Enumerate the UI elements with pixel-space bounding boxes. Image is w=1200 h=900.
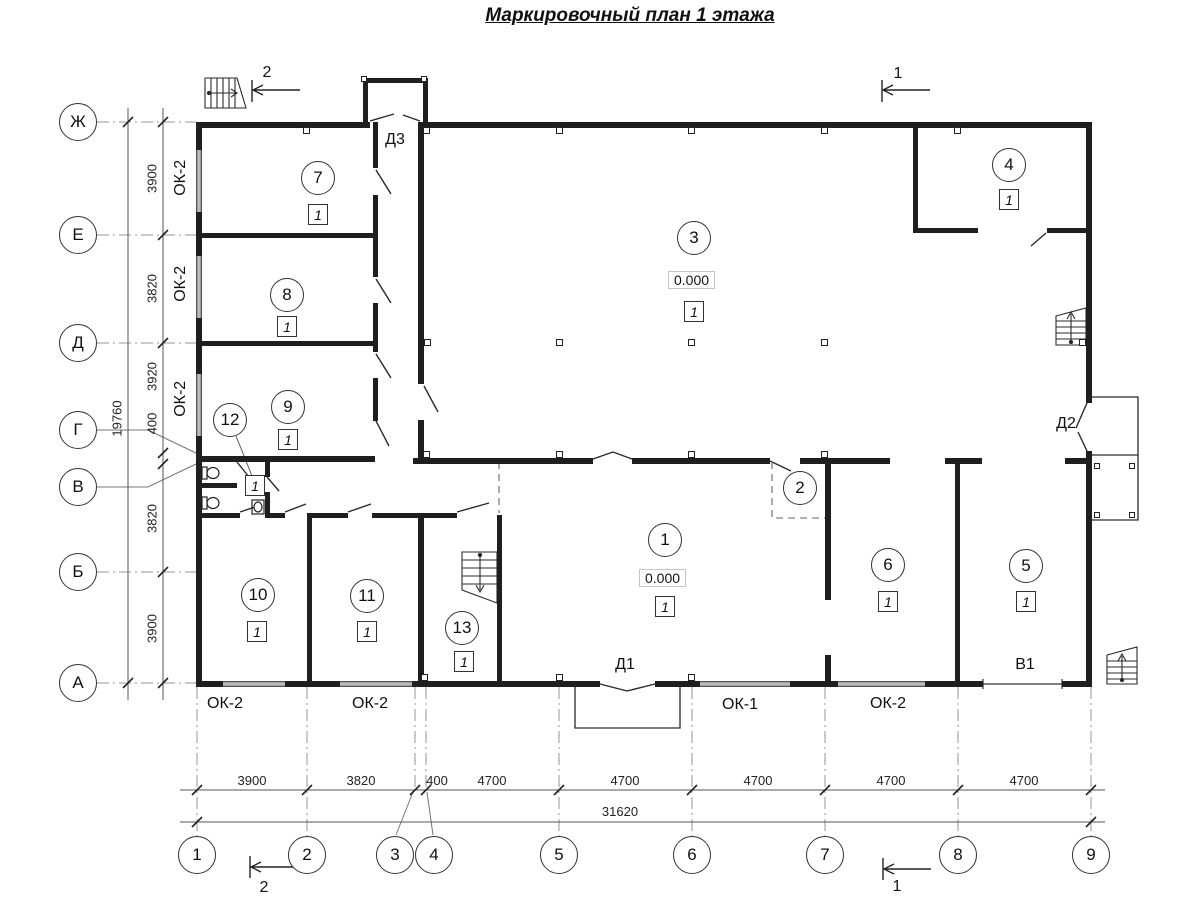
column <box>688 339 695 346</box>
section-1-bottom-label: 1 <box>889 878 905 896</box>
grid-col-8: 8 <box>939 836 977 874</box>
grid-row-v: В <box>59 468 97 506</box>
room-9-badge: 1 <box>278 429 298 450</box>
window-ok2-room11 <box>340 681 412 687</box>
column <box>1094 512 1100 518</box>
room-2-number: 2 <box>783 471 817 505</box>
wall-room4-south-1 <box>913 228 978 233</box>
window-ok2-label-bottom-3: ОК-2 <box>858 695 918 713</box>
wall-corridor-south-4 <box>372 513 457 518</box>
wall-hall-south-2 <box>632 458 770 464</box>
door-d1-label: Д1 <box>605 656 645 674</box>
wall-wc-vert-1 <box>265 462 270 477</box>
column <box>1079 339 1086 346</box>
wall-hall-south-1 <box>413 458 593 464</box>
wall-room2-east-1 <box>825 462 831 600</box>
drawing-title: Маркировочный план 1 этажа <box>400 5 860 27</box>
dim-col-6: 4700 <box>736 774 780 787</box>
wall-corridor-west-4 <box>373 378 378 421</box>
room-4-number: 4 <box>992 148 1026 182</box>
wall-corridor-south-1 <box>196 513 240 518</box>
room-1-badge: 1 <box>655 596 675 617</box>
window-ok2-label-left-1: ОК-2 <box>172 156 190 200</box>
wall-corridor-west-3 <box>373 303 378 352</box>
dashed-partitions <box>499 462 827 518</box>
column <box>688 127 695 134</box>
wall-room10-11 <box>307 518 312 681</box>
grid-col-4: 4 <box>415 836 453 874</box>
grid-row-b: Б <box>59 553 97 591</box>
floor-plan: Маркировочный план 1 этажа Ж Е Д Г В Б А… <box>0 0 1200 900</box>
room-5-badge: 1 <box>1016 591 1036 612</box>
column <box>423 127 430 134</box>
column <box>423 451 430 458</box>
porches <box>575 397 1138 728</box>
dim-col-1: 3900 <box>230 774 274 787</box>
dim-col-7: 4700 <box>869 774 913 787</box>
column <box>821 127 828 134</box>
grid-row-zh: Ж <box>59 103 97 141</box>
room-12-number: 12 <box>213 403 247 437</box>
window-ok2-room10 <box>223 681 285 687</box>
wall-vestibule-west <box>363 78 368 124</box>
gate-v1-opening <box>983 679 1062 689</box>
wall-vestibule-east <box>423 78 428 124</box>
wall-room4-west <box>913 128 918 233</box>
wall-room11-13 <box>418 518 424 681</box>
window-ok2-room6 <box>838 681 925 687</box>
window-ok2-room9 <box>196 374 202 436</box>
room-11-badge: 1 <box>357 621 377 642</box>
grid-col-1: 1 <box>178 836 216 874</box>
wall-room5-6 <box>955 462 960 681</box>
column <box>1129 463 1135 469</box>
grid-col-6: 6 <box>673 836 711 874</box>
column <box>556 127 563 134</box>
grid-col-9: 9 <box>1072 836 1110 874</box>
dim-row-1: 3900 <box>146 159 159 199</box>
dim-col-3: 400 <box>422 774 452 787</box>
wall-corridor-west-2 <box>373 195 378 277</box>
dim-row-4: 400 <box>146 409 159 439</box>
dim-row-2: 3820 <box>146 269 159 309</box>
wall-corridor-south-2 <box>265 513 285 518</box>
section-2-bottom-label: 2 <box>256 879 272 897</box>
room-4-badge: 1 <box>999 189 1019 210</box>
linework-layer <box>0 0 1200 900</box>
room-8-number: 8 <box>270 278 304 312</box>
window-ok2-label-bottom-2: ОК-2 <box>340 695 400 713</box>
wall-hall-south-4 <box>945 458 982 464</box>
window-ok2-label-left-3: ОК-2 <box>172 377 190 421</box>
dim-row-6: 3900 <box>146 609 159 649</box>
window-ok1-label: ОК-1 <box>710 696 770 714</box>
room-1-elevation: 0.000 <box>639 569 686 587</box>
window-ok2-label-bottom-1: ОК-2 <box>195 695 255 713</box>
wall-east-upper <box>1086 122 1092 403</box>
dim-col-2: 3820 <box>339 774 383 787</box>
grid-row-e: Е <box>59 216 97 254</box>
door-d2-label: Д2 <box>1046 415 1086 433</box>
window-ok2-label-left-2: ОК-2 <box>172 262 190 306</box>
dim-col-5: 4700 <box>603 774 647 787</box>
room-7-number: 7 <box>301 161 335 195</box>
window-ok2-room8 <box>196 256 202 318</box>
gate-v1-label: В1 <box>1005 656 1045 674</box>
room-13-number: 13 <box>445 611 479 645</box>
window-ok2-room7 <box>196 150 202 212</box>
column <box>1094 463 1100 469</box>
section-1-top-label: 1 <box>890 65 906 83</box>
grid-col-7: 7 <box>806 836 844 874</box>
column <box>688 674 695 681</box>
column <box>361 76 367 82</box>
grid-col-3: 3 <box>376 836 414 874</box>
wall-room4-south-2 <box>1047 228 1086 233</box>
column <box>954 127 961 134</box>
room-6-badge: 1 <box>878 591 898 612</box>
wall-vestibule-north <box>363 78 428 83</box>
room-1-number: 1 <box>648 523 682 557</box>
room-7-badge: 1 <box>308 204 328 225</box>
wall-wc-partition <box>202 483 237 488</box>
wall-row-e <box>196 233 377 238</box>
room-9-number: 9 <box>271 390 305 424</box>
column <box>688 451 695 458</box>
column <box>556 339 563 346</box>
grid-col-5: 5 <box>540 836 578 874</box>
column <box>821 339 828 346</box>
grid-row-g: Г <box>59 411 97 449</box>
wall-corridor-south-3 <box>307 513 348 518</box>
room-13-badge: 1 <box>454 651 474 672</box>
column <box>556 674 563 681</box>
column <box>303 127 310 134</box>
wall-row-g <box>196 456 375 462</box>
dim-col-8: 4700 <box>1002 774 1046 787</box>
room-12-badge: 1 <box>245 475 265 496</box>
column <box>421 76 427 82</box>
door-d3-label: Д3 <box>375 131 415 149</box>
room-8-badge: 1 <box>277 316 297 337</box>
grid-row-a: А <box>59 664 97 702</box>
wall-top-left <box>196 122 370 128</box>
grid-col-2: 2 <box>288 836 326 874</box>
room-10-number: 10 <box>241 578 275 612</box>
section-2-top-label: 2 <box>259 64 275 82</box>
column <box>1129 512 1135 518</box>
column <box>821 451 828 458</box>
room-11-number: 11 <box>350 579 384 613</box>
wall-hall-south-3 <box>800 458 890 464</box>
wall-hall-south-5 <box>1065 458 1092 464</box>
wall-room13-east <box>497 515 502 681</box>
wall-wc-vert-2 <box>265 492 270 513</box>
room-5-number: 5 <box>1009 549 1043 583</box>
wall-room2-east-2 <box>825 655 831 681</box>
dim-col-total: 31620 <box>595 805 645 818</box>
room-10-badge: 1 <box>247 621 267 642</box>
room-3-elevation: 0.000 <box>668 271 715 289</box>
wall-row-d <box>196 341 377 346</box>
room-3-number: 3 <box>677 221 711 255</box>
room-6-number: 6 <box>871 548 905 582</box>
dim-row-3: 3920 <box>146 357 159 397</box>
dim-row-5: 3820 <box>146 499 159 539</box>
column <box>421 674 428 681</box>
dim-col-4: 4700 <box>470 774 514 787</box>
wall-east-lower <box>1086 451 1092 687</box>
dim-row-total: 19760 <box>111 395 124 443</box>
wall-top-right <box>420 122 1092 128</box>
column <box>556 451 563 458</box>
window-ok1-room1 <box>700 681 790 687</box>
grid-row-d: Д <box>59 324 97 362</box>
room-3-badge: 1 <box>684 301 704 322</box>
column <box>424 339 431 346</box>
